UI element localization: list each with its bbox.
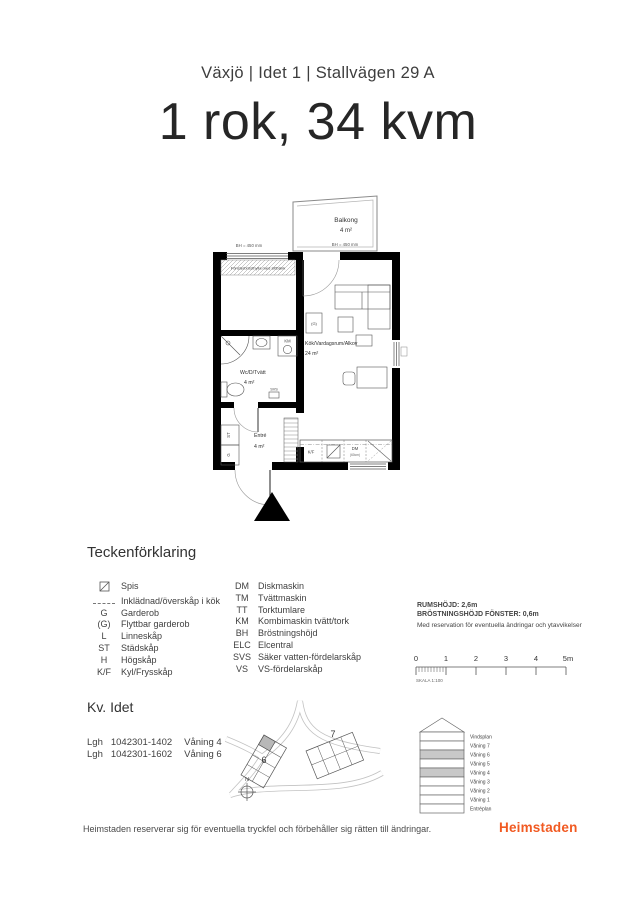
legend-label: Tvättmaskin [258,593,398,605]
balcony-door [303,260,339,296]
building-elevation: Vindsplan Våning 7 Våning 6 Våning 5 Vån… [412,716,527,818]
kitchen-counter: K/F DM (60cm) [284,418,392,462]
legend-label: Torktumlare [258,605,398,617]
legend-label: Säker vatten-fördelarskåp [258,652,398,664]
floor-label: Entréplan [470,807,492,813]
km-label: KM [284,339,291,344]
balcony-area: 4 m² [340,228,352,234]
reservation-note: Med reservation för eventuella ändringar… [417,621,592,630]
washer-combo: KM [278,336,297,356]
window-parapet-height: BH = 450 mm [236,243,263,248]
dining-set [343,367,387,388]
legend-label: VS-fördelarskåp [258,664,398,676]
living-room-label: Kök/Vardagsrum/Alkov [305,341,358,347]
legend-label: Spis [121,581,241,596]
legend-label: Elcentral [258,640,398,652]
building-7-label: 7 [330,729,335,739]
floor-label: Våning 7 [470,743,490,750]
legend-abbr: L [87,631,121,643]
apartment-id: 1042301-1402 [111,737,172,748]
building-7 [306,732,364,779]
entrance-arrow [254,492,290,521]
floor-label: Våning 5 [470,761,490,768]
floor-label: Våning 1 [470,797,490,804]
balcony: Balkong 4 m² BH = 450 mm [293,196,377,251]
legend-abbr: SVS [226,652,258,664]
scale-tick-label: 3 [504,654,508,663]
building-6-label: 6 [261,755,266,765]
window-north [226,254,288,259]
legend-abbr: G [87,608,121,620]
legend-label: Städskåp [121,643,241,655]
parapet-height: BRÖSTNINGSHÖJD FÖNSTER: 0,6m [417,610,592,619]
legend-abbr: (G) [87,619,121,631]
legend-abbr: DM [226,581,258,593]
dishwasher-label: DM [352,446,359,451]
dashed-line-icon [87,596,121,608]
legend-abbr: TT [226,605,258,617]
scale-tick-label: 1 [444,654,448,663]
window-south [350,464,386,469]
room-height: RUMSHÖJD: 2,6m [417,601,592,610]
floor-label: Våning 4 [470,770,490,777]
scale-tick-label: 4 [534,654,538,663]
legend-title: Teckenförklaring [87,544,196,561]
legend-label: Diskmaskin [258,581,398,593]
legend-abbr: BH [226,628,258,640]
entry-area: 4 m² [254,444,265,450]
window-east [394,342,407,366]
wc-area: 4 m² [244,380,255,386]
page-title: 1 rok, 34 kvm [0,92,636,152]
st-closet-label: ST [226,432,231,438]
legend-column-2: DM Diskmaskin TM Tvättmaskin TT Torktuml… [226,581,398,675]
legend-abbr: K/F [87,667,121,679]
address-subtitle: Växjö | Idet 1 | Stallvägen 29 A [0,64,636,83]
disclaimer: Heimstaden reserverar sig för eventuella… [83,824,431,834]
window-bench: Fönsterbrösthylla med sittbänk [221,260,295,275]
legend-label: Kombimaskin tvätt/tork [258,616,398,628]
balcony-parapet-height: BH = 450 mm [332,242,359,247]
scale-bar: 0 1 2 3 4 5m SKALA 1:100 [408,648,583,690]
apartment-floor: Våning 4 [184,737,222,748]
floor-label: Våning 3 [470,779,490,786]
apartment-id: 1042301-1602 [111,749,172,760]
living-room-area: 24 m² [305,351,319,357]
legend-label: Högskåp [121,655,241,667]
stove-icon [87,581,121,596]
scale-tick-label: 0 [414,654,418,663]
apartment-prefix: Lgh [87,749,103,760]
roof [420,718,464,732]
scale-label: SKALA 1:100 [416,678,443,683]
legend-label: Bröstningshöjd [258,628,398,640]
movable-wardrobe: (G) [306,313,322,333]
legend-abbr: ST [87,643,121,655]
apartment-row: Lgh1042301-1602Våning 6 [87,749,222,761]
entry-closets: ST G [221,425,239,465]
heimstaden-logo: Heimstaden [499,820,578,835]
floorplan-page: Växjö | Idet 1 | Stallvägen 29 A 1 rok, … [0,0,636,900]
apartment-list: Lgh1042301-1402Våning 4 Lgh1042301-1602V… [87,737,222,761]
sofa [335,285,390,329]
compass-north-label: N [245,777,249,783]
g-closet-label: G [226,453,231,456]
floor-label: Våning 6 [470,752,490,759]
window-bench-note: Fönsterbrösthylla med sittbänk [231,266,285,271]
block-title: Kv. Idet [87,699,133,715]
entry-label: Entré [254,433,267,439]
legend-abbr: VS [226,664,258,676]
legend-label: Inklädnad/överskåp i kök [121,596,241,608]
gp-label: (G) [311,321,317,326]
site-plan: 6 7 N [222,697,387,822]
info-block: RUMSHÖJD: 2,6m BRÖSTNINGSHÖJD FÖNSTER: 0… [417,601,592,630]
fridge-label: K/F [308,450,315,455]
scale-tick-label: 2 [474,654,478,663]
legend-column-1: Spis Inklädnad/överskåp i kök G Garderob… [87,581,241,678]
scale-tick-label: 5m [563,654,573,663]
legend-abbr: ELC [226,640,258,652]
legend-abbr: H [87,655,121,667]
apartment-row: Lgh1042301-1402Våning 4 [87,737,222,749]
wc-door [234,408,258,432]
legend-label: Flyttbar garderob [121,619,241,631]
legend-label: Linneskåp [121,631,241,643]
floor-plan: Balkong 4 m² BH = 450 mm BH [160,185,480,535]
floor-label: Våning 2 [470,788,490,795]
floor-label: Vindsplan [470,735,492,741]
legend-label: Kyl/Frysskåp [121,667,241,679]
balcony-label: Balkong [334,217,358,224]
svs-label: SVS [270,388,278,392]
dishwasher-size: (60cm) [350,453,360,457]
legend-abbr: KM [226,616,258,628]
wc-label: Wc/D/Tvätt [240,370,266,376]
legend-abbr: TM [226,593,258,605]
legend-label: Garderob [121,608,241,620]
apartment-prefix: Lgh [87,737,103,748]
apartment-floor: Våning 6 [184,749,222,760]
entrance-door [235,470,270,505]
